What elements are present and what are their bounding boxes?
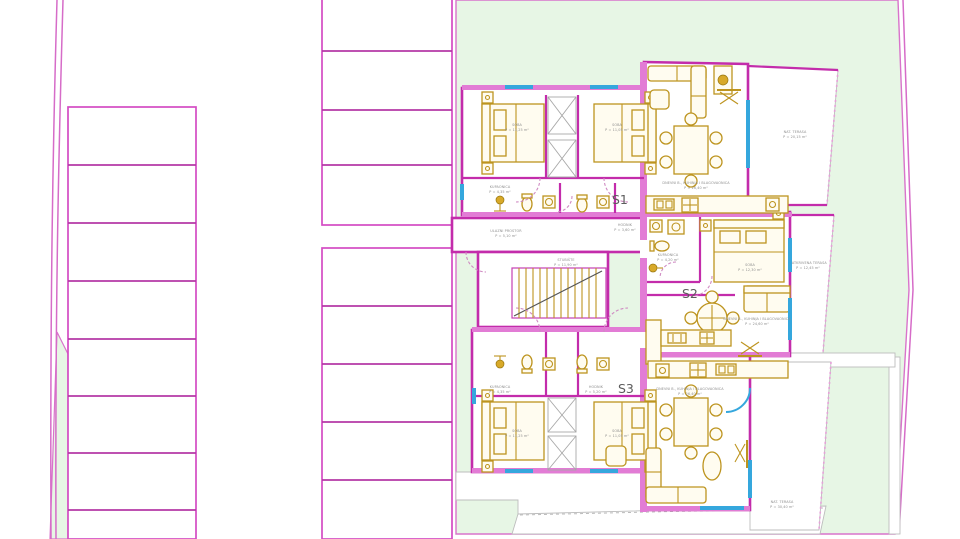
apartment-label-s3: S3 — [618, 381, 634, 396]
s2-hall-label: HODNIK — [618, 223, 633, 227]
s2-room-area: P = 12,30 m² — [738, 268, 762, 272]
terrace-top-right: NAT. TERASA P = 20,15 m² — [748, 66, 838, 205]
stairs-label: STUBIŠTE — [557, 257, 574, 262]
parking-middle-bottom — [322, 248, 452, 539]
s3-bath-label: KUPAONICA — [490, 385, 511, 389]
apartment-label-s2: S2 — [682, 286, 698, 301]
terrace-top-label: NAT. TERASA — [784, 130, 807, 134]
s3-room1-label: SOBA — [512, 429, 522, 433]
terrace-bottom-label: NAT. TERASA — [771, 500, 794, 504]
side-path — [889, 357, 900, 534]
s1-room1-label: SOBA — [512, 123, 522, 127]
kitchen-counter-icon — [646, 196, 788, 213]
kitchen-counter-icon — [648, 361, 788, 378]
s1-bath-area: P = 4,35 m² — [489, 190, 511, 194]
s3-hall-area: P = 5,20 m² — [585, 390, 607, 394]
apartment-label-s1: S1 — [612, 192, 628, 207]
s3-living-area: P = 26,40 m² — [678, 392, 702, 396]
s1-room1-area: P = 11,25 m² — [505, 128, 529, 132]
s1-living-area: P = 26,40 m² — [684, 186, 708, 190]
coffee-table-icon — [703, 452, 721, 480]
armchair-icon — [650, 90, 669, 109]
stairs-area-label: P = 11,90 m² — [554, 263, 578, 267]
s1-room2-area: P = 11,05 m² — [605, 128, 629, 132]
s1-living-label: DNEVNI B., KUHINJA I BLAGOVAONICA — [662, 181, 730, 185]
s2-living-area: P = 24,60 m² — [745, 322, 769, 326]
s3-living-label: DNEVNI B., KUHINJA I BLAGOVAONICA — [656, 387, 724, 391]
bed-icon — [482, 92, 544, 174]
site-boundary-left — [50, 0, 68, 539]
terrace-mid-area-label: P = 12,45 m² — [796, 266, 820, 270]
wall-top-s3 — [472, 327, 644, 332]
s1-bath-label: KUPAONICA — [490, 185, 511, 189]
bed-icon — [594, 92, 656, 174]
s1-room2-label: SOBA — [612, 123, 622, 127]
s2-living-label: DNEVNI B., KUHINJA I BLAGOVAONICA — [723, 317, 791, 321]
s3-room2-area: P = 11,05 m² — [605, 434, 629, 438]
parking-middle-top — [322, 0, 452, 225]
parking-mid-bottom-outline — [322, 248, 452, 539]
s2-bath-label: KUPAONICA — [658, 253, 679, 257]
s3-room1-area: P = 11,25 m² — [505, 434, 529, 438]
armchair-icon — [606, 446, 626, 466]
terrace-bottom-area-label: P = 30,40 m² — [770, 505, 794, 509]
parking-left — [68, 107, 196, 539]
terrace-top-area-label: P = 20,15 m² — [783, 135, 807, 139]
green-sliver — [50, 332, 68, 539]
s2-room-label: SOBA — [745, 263, 755, 267]
terrace-mid-label: NATKRIVENA TERASA — [789, 261, 827, 265]
wall-bottom-s3 — [472, 468, 644, 473]
s3-bath-area: P = 4,35 m² — [489, 390, 511, 394]
s2-hall-area: P = 3,60 m² — [614, 228, 636, 232]
wall-s2-s3 — [644, 352, 790, 357]
s3-hall-label: HODNIK — [589, 385, 604, 389]
entry-area: P = 5,10 m² — [495, 234, 517, 238]
s2-bath-area: P = 4,20 m² — [657, 258, 679, 262]
parking-left-outline — [68, 107, 196, 539]
parking-mid-top-outline — [322, 0, 452, 225]
s3-room2-label: SOBA — [612, 429, 622, 433]
sofa-icon — [744, 286, 790, 312]
entry-corridor — [452, 218, 644, 252]
entry-label: ULAZNI PROSTOR — [490, 229, 522, 233]
floor-plan-canvas: NAT. TERASA P = 20,15 m² NATKRIVENA TERA… — [0, 0, 960, 539]
